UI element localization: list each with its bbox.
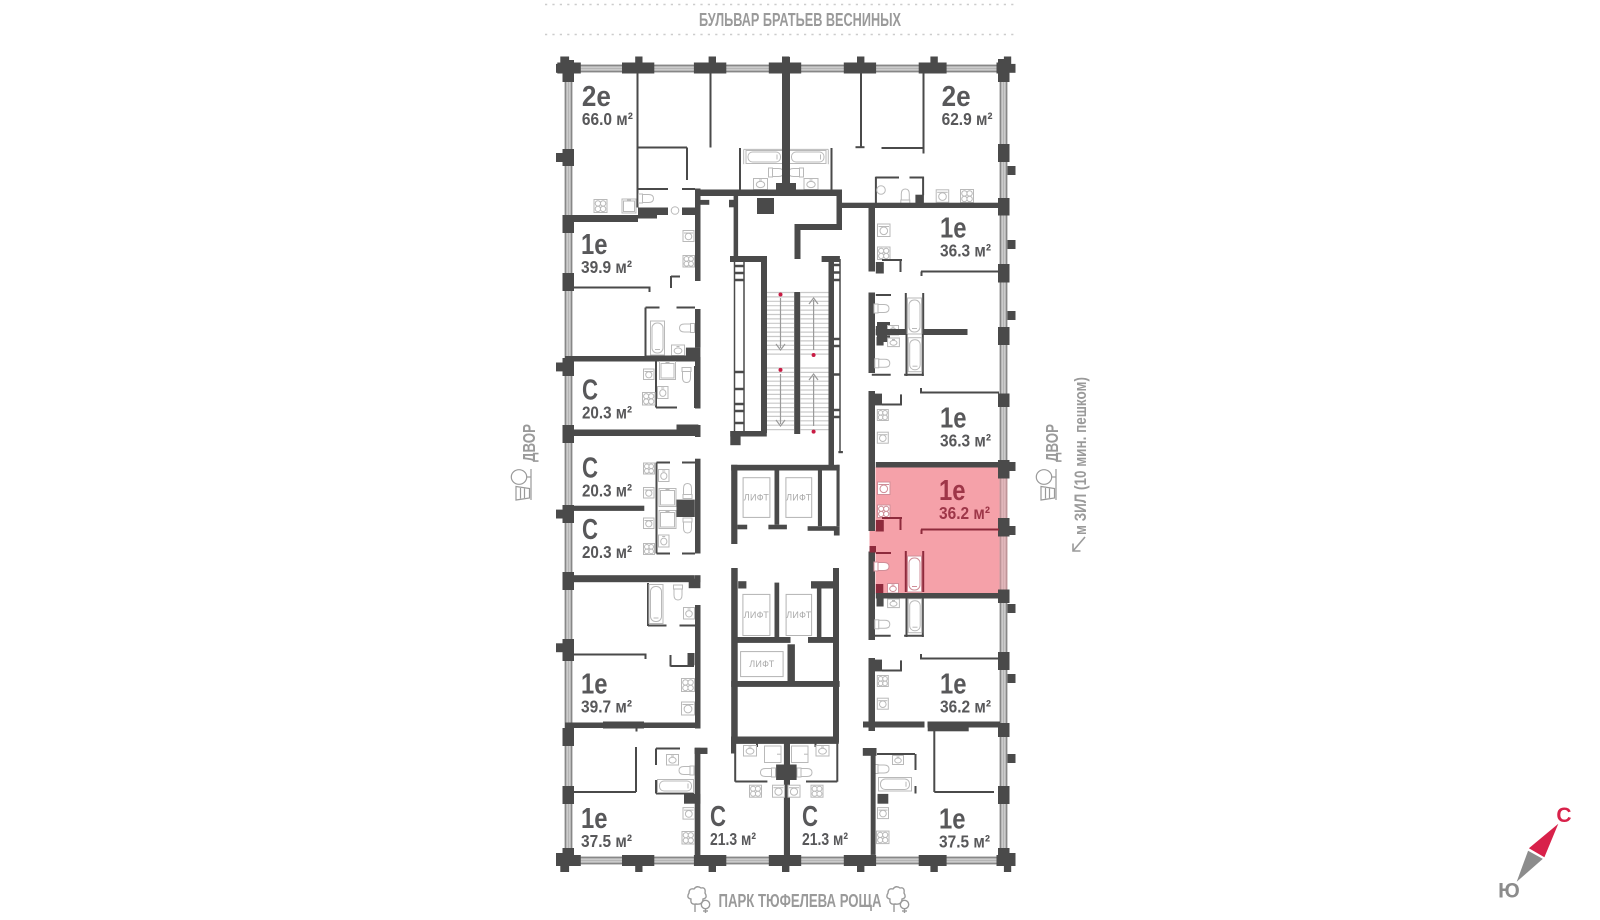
svg-text:ЛИФТ: ЛИФТ [786,493,812,503]
svg-text:ЛИФТ: ЛИФТ [744,493,770,503]
svg-text:Ю: Ю [1498,880,1520,903]
svg-text:ЛИФТ: ЛИФТ [786,610,812,620]
svg-text:21.3 м²: 21.3 м² [710,829,756,849]
svg-text:39.7 м²: 39.7 м² [581,697,632,717]
svg-text:20.3 м²: 20.3 м² [582,481,632,501]
svg-text:20.3 м²: 20.3 м² [582,542,632,562]
svg-text:37.5 м²: 37.5 м² [939,832,990,852]
svg-text:37.5 м²: 37.5 м² [581,831,632,851]
svg-text:21.3 м²: 21.3 м² [802,829,848,849]
svg-text:БУЛЬВАР БРАТЬЕВ ВЕСНИНЫХ: БУЛЬВАР БРАТЬЕВ ВЕСНИНЫХ [699,10,901,30]
svg-text:ЛИФТ: ЛИФТ [749,659,775,669]
svg-text:36.3 м²: 36.3 м² [940,431,991,451]
svg-text:ДВОР: ДВОР [519,424,539,462]
svg-text:20.3 м²: 20.3 м² [582,403,632,423]
svg-text:ПАРК ТЮФЕЛЕВА РОЩА: ПАРК ТЮФЕЛЕВА РОЩА [719,891,882,911]
svg-text:ЛИФТ: ЛИФТ [744,610,770,620]
svg-text:36.2 м²: 36.2 м² [939,503,990,523]
svg-text:36.2 м²: 36.2 м² [940,697,991,717]
svg-text:62.9 м²: 62.9 м² [942,109,993,129]
svg-text:39.9 м²: 39.9 м² [581,257,632,277]
svg-text:66.0 м²: 66.0 м² [582,109,633,129]
svg-text:36.3 м²: 36.3 м² [940,241,991,261]
svg-text:м ЗИЛ (10 мин. пешком): м ЗИЛ (10 мин. пешком) [1071,377,1090,535]
svg-text:ДВОР: ДВОР [1042,424,1062,462]
svg-text:С: С [1556,804,1571,827]
